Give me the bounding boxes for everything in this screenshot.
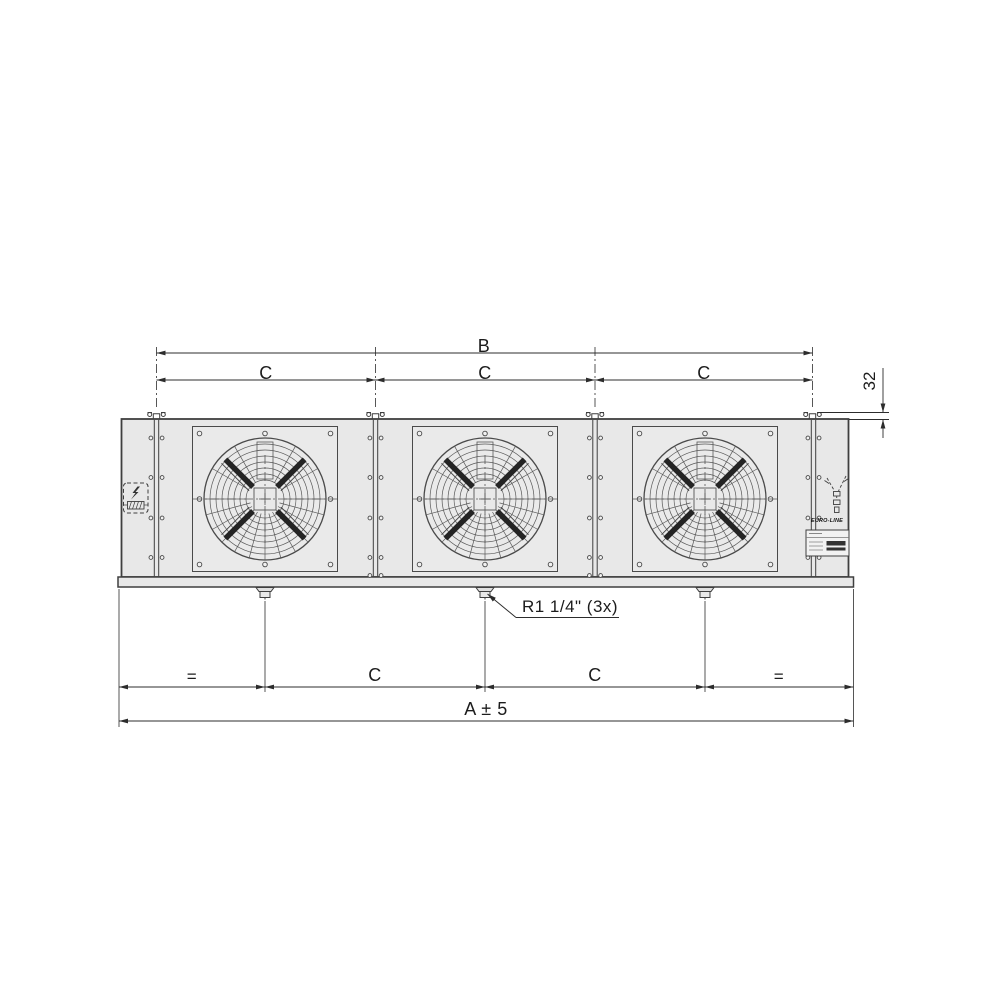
dim-label-c-top-3: C bbox=[697, 363, 711, 384]
dim-label-b: B bbox=[478, 336, 491, 357]
brand-logo: EURO-LINE bbox=[811, 518, 843, 524]
unit-body bbox=[118, 413, 854, 600]
dim-label-c-bottom-1: C bbox=[368, 665, 382, 686]
fan-assembly-1 bbox=[193, 427, 338, 572]
drain-fittings bbox=[256, 588, 714, 600]
technical-drawing-page: B C C C 32 = C C = A ± 5 R1 1/4" (3x) EU… bbox=[0, 0, 1000, 1000]
dim-label-c-bottom-2: C bbox=[588, 665, 602, 686]
mounting-brackets bbox=[148, 413, 822, 420]
dim-label-c-top-2: C bbox=[478, 363, 492, 384]
dim-label-equal-right: = bbox=[774, 667, 784, 687]
nameplate bbox=[806, 530, 849, 556]
dim-label-equal-left: = bbox=[187, 667, 197, 687]
fan-assembly-2 bbox=[413, 427, 558, 572]
drip-tray bbox=[118, 577, 854, 587]
dim-label-c-top-1: C bbox=[259, 363, 273, 384]
drain-callout-label: R1 1/4" (3x) bbox=[522, 597, 618, 617]
fan-assembly-3 bbox=[633, 427, 778, 572]
dim-label-32: 32 bbox=[860, 372, 880, 391]
dim-label-a: A ± 5 bbox=[464, 699, 507, 720]
drawing-canvas bbox=[0, 0, 1000, 1000]
